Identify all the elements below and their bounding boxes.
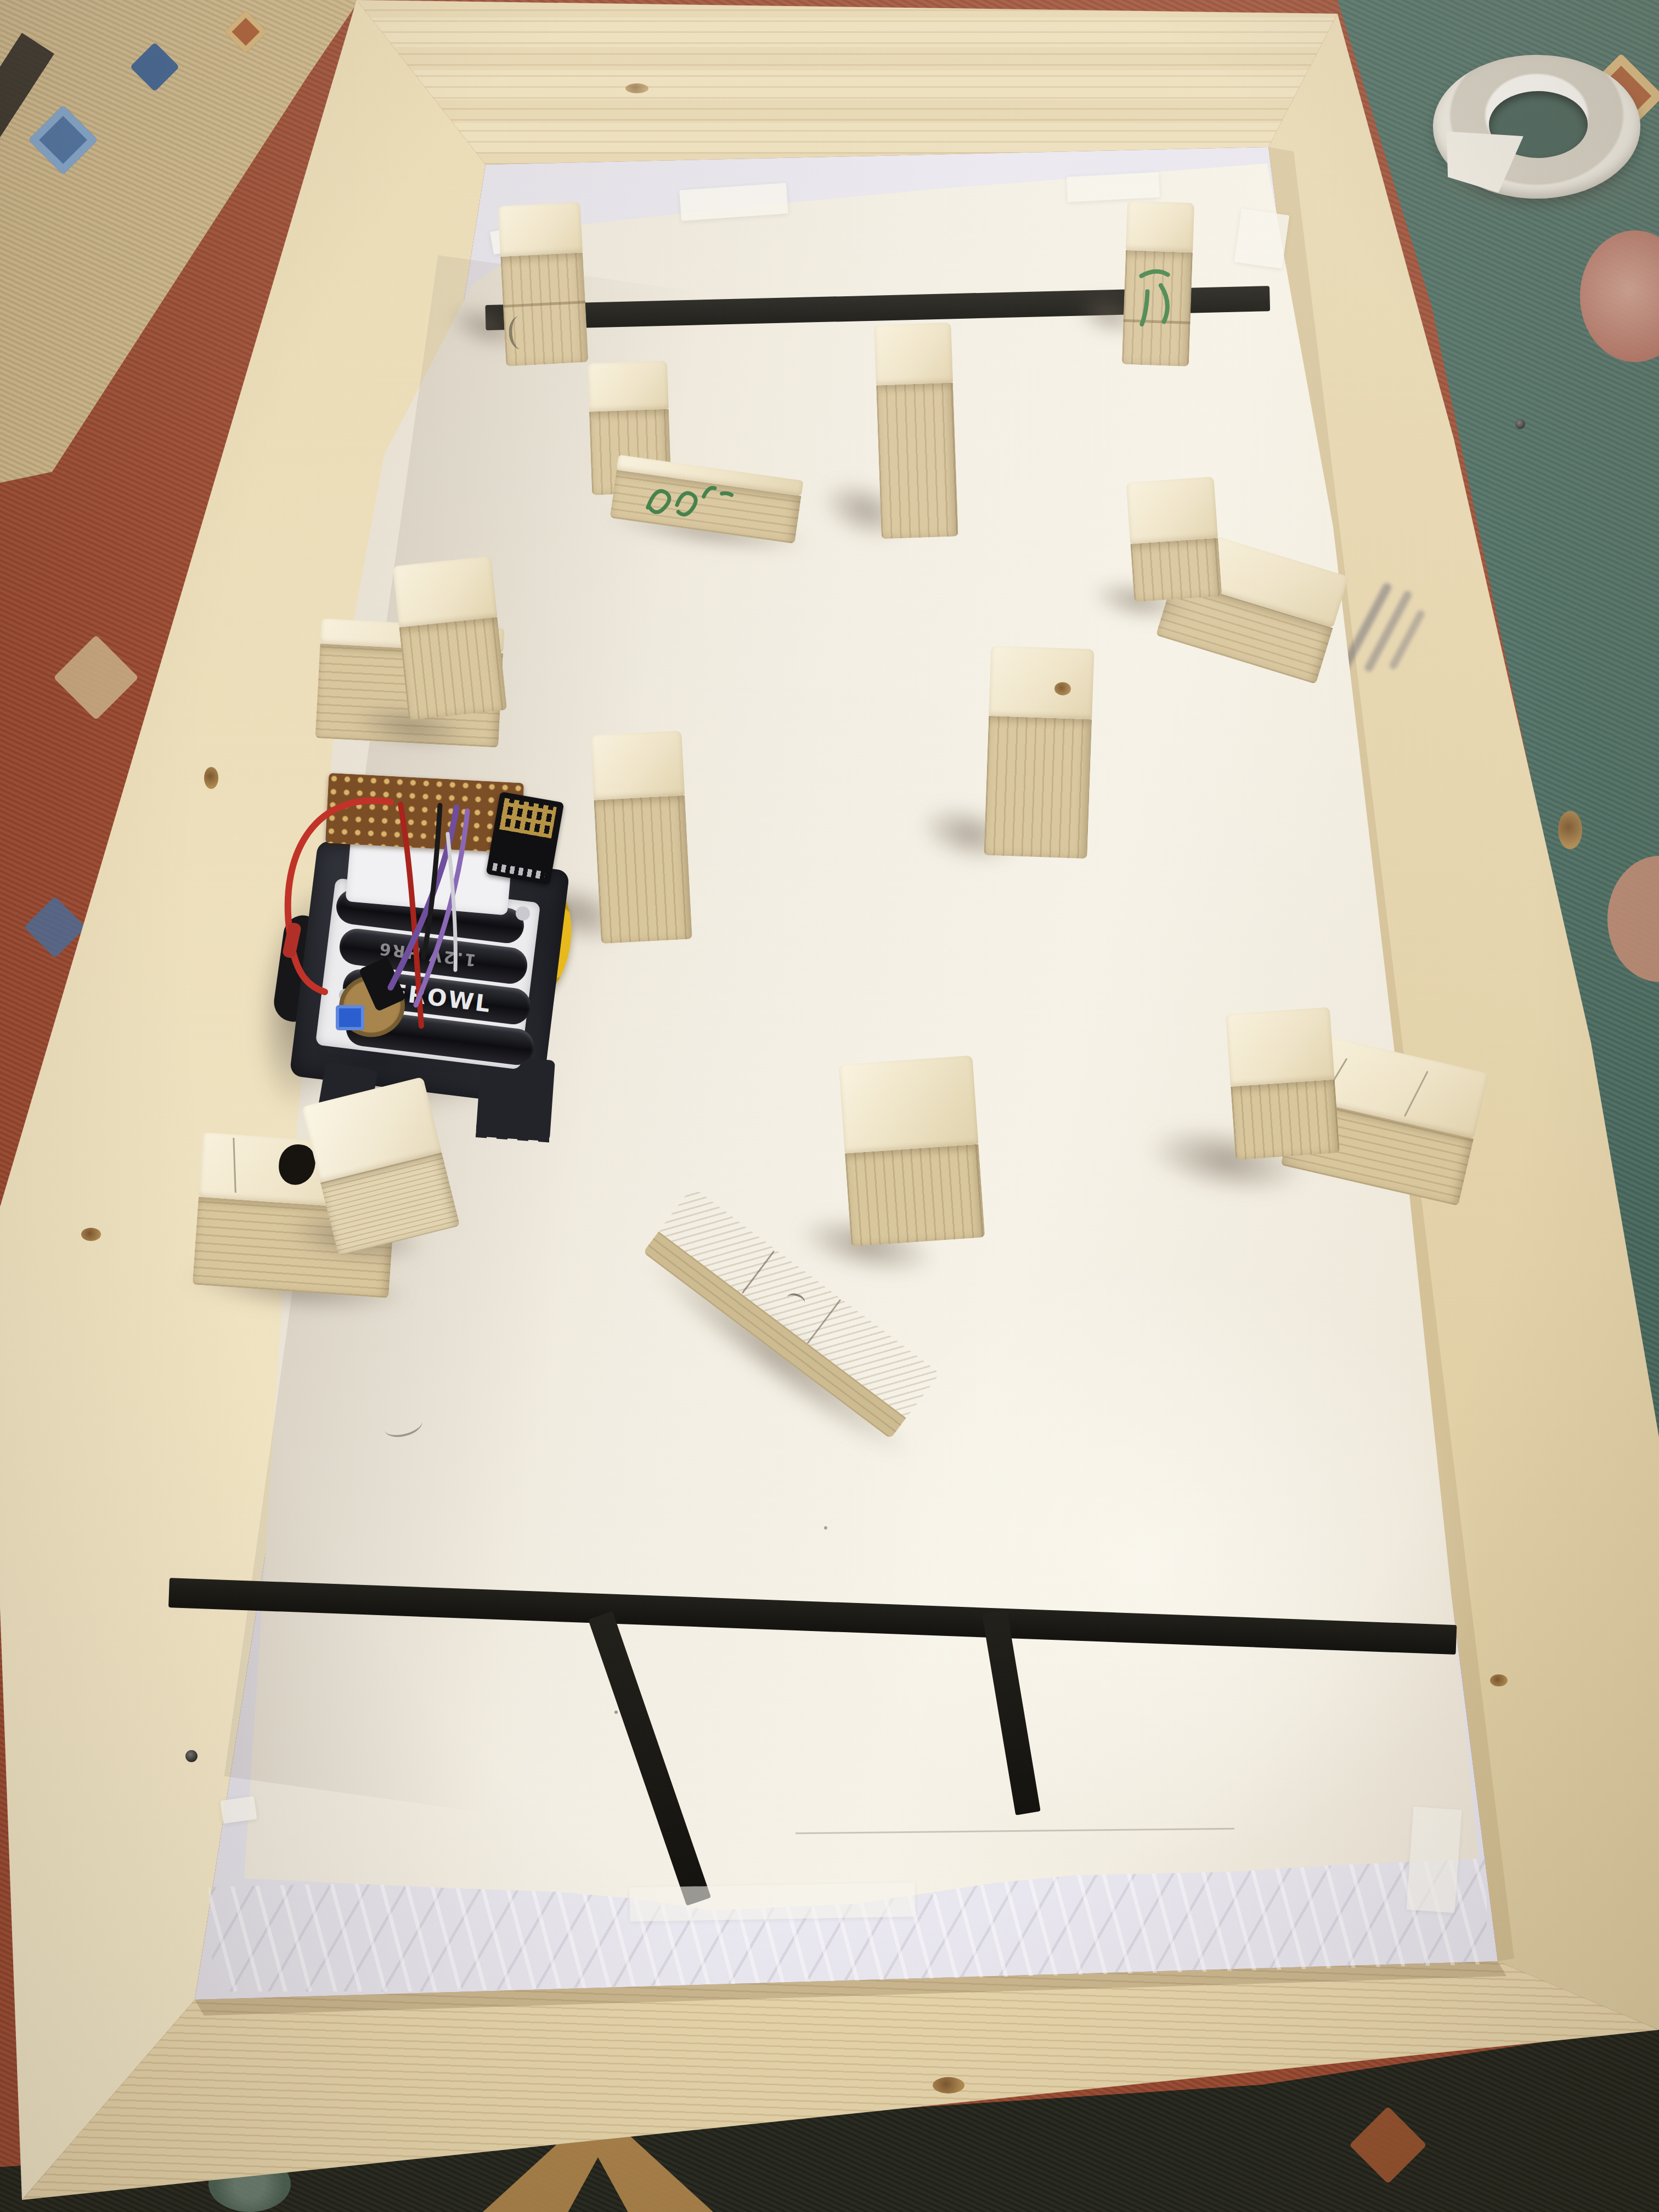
wood-knot bbox=[81, 1228, 101, 1241]
pencil-mark bbox=[508, 315, 532, 349]
wood-knot-hole bbox=[278, 1143, 317, 1186]
robot: 1.2V HR6 EROWL bbox=[274, 768, 582, 1152]
wood-block-post bbox=[498, 202, 588, 366]
wood-block-tower bbox=[839, 1056, 985, 1246]
masking-tape-piece bbox=[1407, 1807, 1462, 1913]
robot-wires bbox=[274, 768, 582, 1152]
wood-knot bbox=[625, 83, 648, 93]
pencil-mark bbox=[1404, 1071, 1428, 1116]
masking-tape-piece bbox=[220, 1796, 257, 1824]
wood-block-post bbox=[984, 646, 1094, 859]
masking-tape-piece bbox=[1234, 208, 1290, 268]
wood-block-post bbox=[590, 731, 692, 944]
speck bbox=[614, 1711, 618, 1714]
wood-knot bbox=[1054, 682, 1071, 696]
tape-roll bbox=[1433, 55, 1640, 199]
wood-knot bbox=[1558, 811, 1582, 849]
green-marker-writing bbox=[1127, 259, 1185, 337]
wood-knot bbox=[204, 767, 218, 789]
wood-block-post bbox=[874, 323, 958, 539]
wood-block-post bbox=[393, 556, 507, 720]
wood-knot bbox=[933, 2077, 964, 2093]
masking-tape-piece bbox=[629, 1882, 915, 1921]
pencil-mark bbox=[785, 1291, 807, 1310]
paper-highlight bbox=[823, 1262, 1481, 1865]
wood-knot bbox=[1490, 1674, 1508, 1686]
wood-block-post bbox=[1122, 201, 1194, 366]
pencil-mark bbox=[742, 1250, 775, 1293]
photo-robot-arena: 1.2V HR6 EROWL bbox=[0, 0, 1659, 2212]
wood-block-cube bbox=[1126, 477, 1222, 602]
masking-tape-piece bbox=[1066, 172, 1160, 202]
pencil-mark bbox=[233, 1138, 236, 1193]
speck bbox=[824, 1526, 827, 1530]
wood-block-cube bbox=[1226, 1007, 1340, 1160]
screw-hole bbox=[185, 1750, 198, 1762]
screw-hole bbox=[1515, 419, 1525, 429]
pencil-mark bbox=[807, 1299, 842, 1344]
